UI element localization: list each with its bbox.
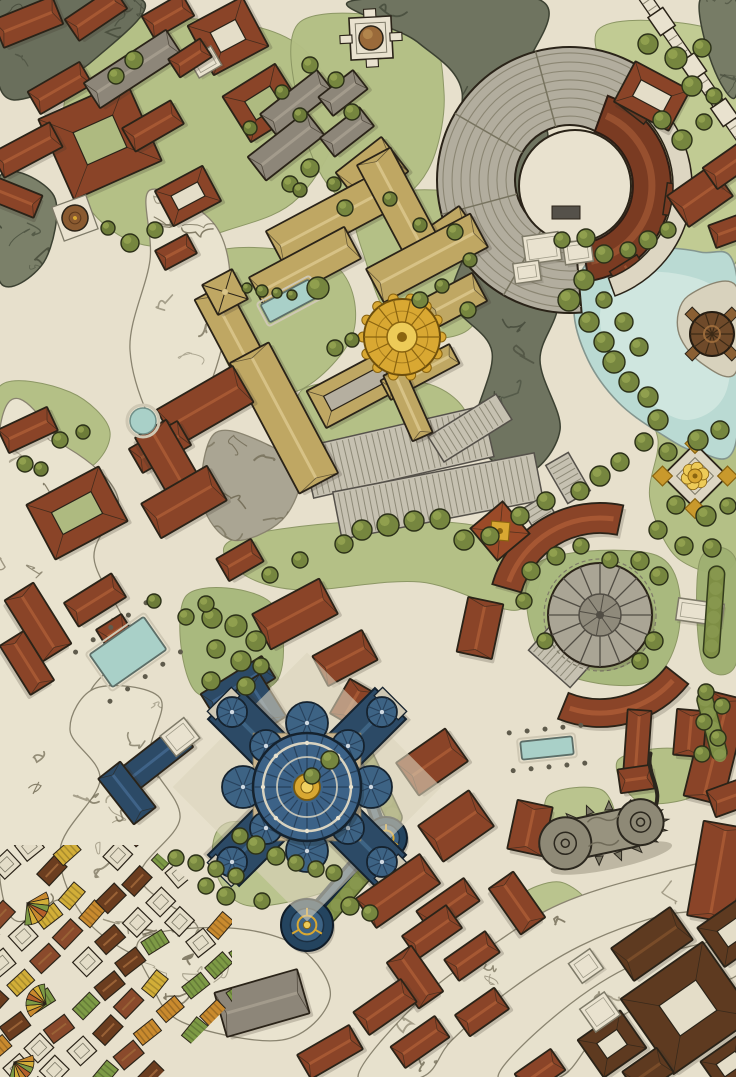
tree-icon [321,751,339,769]
tree-icon [630,338,648,356]
tree-icon [262,567,278,583]
tree-icon [125,51,143,69]
map-canvas [0,0,736,1077]
tree-icon [698,684,714,700]
tree-icon [413,218,427,232]
tree-icon [231,651,251,671]
tree-icon [254,893,270,909]
tree-icon [696,714,712,730]
tree-icon [412,292,428,308]
tree-icon [34,462,48,476]
tree-icon [511,507,529,525]
tree-icon [275,85,289,99]
tree-icon [292,552,308,568]
tree-icon [703,539,721,557]
tree-icon [639,231,657,249]
tree-icon [632,653,648,669]
tree-icon [706,88,722,104]
tree-icon [694,746,710,762]
tree-icon [660,222,676,238]
tree-icon [682,76,702,96]
tree-icon [267,847,285,865]
tree-icon [711,421,729,439]
tree-icon [121,234,139,252]
tree-icon [383,192,397,206]
tree-icon [198,878,214,894]
tree-icon [596,292,612,308]
tree-icon [52,432,68,448]
tree-icon [208,861,224,877]
tree-icon [516,593,532,609]
tree-icon [460,302,476,318]
tree-icon [447,224,463,240]
tree-icon [232,828,248,844]
tree-icon [435,279,449,293]
tree-icon [672,130,692,150]
tree-icon [328,72,344,88]
tree-icon [337,200,353,216]
tree-icon [178,609,194,625]
tree-icon [430,509,450,529]
tree-icon [649,521,667,539]
tree-icon [574,270,594,290]
tree-icon [404,511,424,531]
tree-icon [645,632,663,650]
map-root [0,0,736,1077]
tree-icon [293,183,307,197]
temple-semi-dome [217,697,247,727]
tree-icon [335,535,353,553]
tree-icon [247,836,265,854]
tree-icon [147,222,163,238]
tree-icon [228,868,244,884]
tree-icon [217,887,235,905]
tree-icon [710,730,726,746]
tree-icon [611,453,629,471]
fantasy-city-map [0,0,736,1077]
tree-icon [635,433,653,451]
tree-icon [345,333,359,347]
tree-icon [101,221,115,235]
tree-icon [573,538,589,554]
tree-icon [602,552,618,568]
tree-icon [558,289,580,311]
tree-icon [537,492,555,510]
tree-icon [594,332,614,352]
tree-icon [304,768,320,784]
tree-icon [76,425,90,439]
tree-icon [522,562,540,580]
tree-icon [293,108,307,122]
temple-semi-dome [367,697,397,727]
tree-icon [237,677,255,695]
pond [127,405,159,437]
tree-icon [696,114,712,130]
tree-icon [579,312,599,332]
tree-icon [272,288,282,298]
tree-icon [665,47,687,69]
tree-icon [344,104,360,120]
tree-icon [650,567,668,585]
tree-icon [288,855,304,871]
tree-icon [653,111,671,129]
tree-icon [577,229,595,247]
tree-icon [301,159,319,177]
tree-icon [693,39,711,57]
tree-icon [168,850,184,866]
tree-icon [595,245,613,263]
tree-icon [327,340,343,356]
tree-icon [308,861,324,877]
tree-icon [326,865,342,881]
tree-icon [17,456,33,472]
tree-icon [202,672,220,690]
tree-icon [253,658,269,674]
tree-icon [547,547,565,565]
tree-icon [590,466,610,486]
tree-icon [207,640,225,658]
tree-icon [481,527,499,545]
tree-icon [352,520,372,540]
tree-icon [463,253,477,267]
tree-icon [554,232,570,248]
tree-icon [246,631,266,651]
tree-icon [638,34,658,54]
tree-icon [454,530,474,550]
tree-icon [225,615,247,637]
tree-icon [537,633,553,649]
plaza-block [513,260,544,287]
tree-icon [675,537,693,555]
tree-icon [108,68,124,84]
tree-icon [243,121,257,135]
tree-icon [696,506,716,526]
tree-icon [631,552,649,570]
tree-icon [287,290,297,300]
tree-icon [638,387,658,407]
tree-icon [302,57,318,73]
tree-icon [327,177,341,191]
island-rotunda [685,307,736,361]
tree-icon [198,596,214,612]
tree-icon [714,698,730,714]
tree-icon [188,855,204,871]
tree-icon [688,430,708,450]
tree-icon [362,905,378,921]
tree-icon [341,897,359,915]
tree-icon [667,496,685,514]
tree-icon [256,285,268,297]
tree-icon [648,410,668,430]
tree-icon [615,313,633,331]
tree-icon [377,514,399,536]
tree-icon [720,498,736,514]
tree-icon [603,351,625,373]
tree-icon [307,277,329,299]
tree-icon [147,594,161,608]
tree-icon [659,443,677,461]
tree-icon [619,372,639,392]
tree-icon [571,482,589,500]
tree-icon [620,242,636,258]
tree-icon [242,283,252,293]
